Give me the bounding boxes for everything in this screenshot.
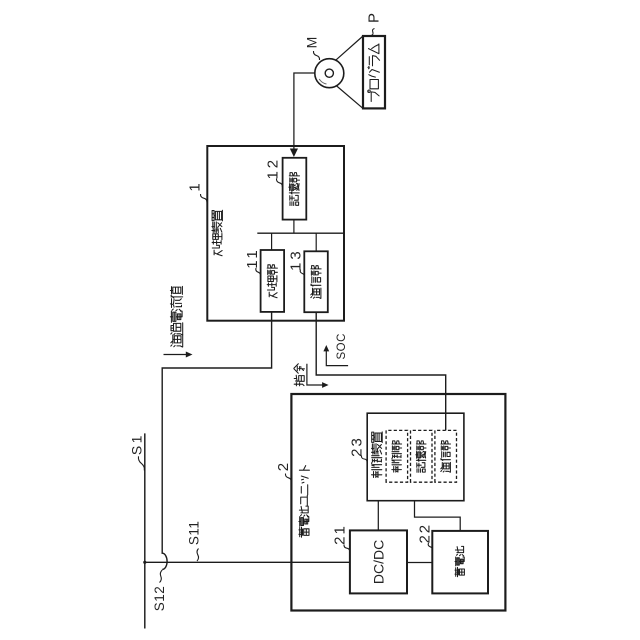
svg-text:S1: S1 [128, 433, 144, 455]
svg-text:1: 1 [187, 183, 204, 191]
svg-text:22: 22 [417, 523, 434, 544]
svg-text:S12: S12 [152, 586, 167, 612]
svg-text:2: 2 [275, 463, 292, 471]
svg-text:11: 11 [244, 247, 261, 269]
svg-text:13: 13 [287, 248, 304, 271]
svg-text:S11: S11 [186, 521, 201, 546]
svg-text:21: 21 [332, 524, 349, 545]
svg-text:23: 23 [349, 436, 366, 457]
svg-text:M: M [303, 37, 319, 49]
svg-text:SOC: SOC [336, 333, 348, 359]
svg-text:P: P [366, 13, 383, 23]
svg-text:DC/DC: DC/DC [370, 540, 386, 584]
svg-text:12: 12 [265, 157, 282, 180]
